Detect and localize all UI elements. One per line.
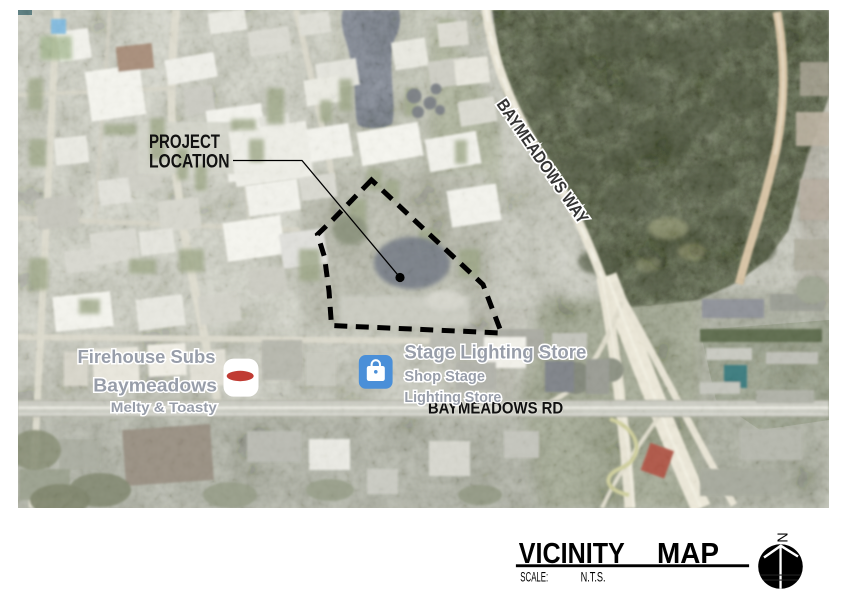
svg-text:Lighting Store: Lighting Store bbox=[404, 390, 501, 406]
svg-text:Melty & Toasty: Melty & Toasty bbox=[111, 400, 218, 415]
svg-text:LOCATION: LOCATION bbox=[149, 152, 230, 173]
svg-text:SCALE:: SCALE: bbox=[520, 570, 548, 585]
svg-text:Firehouse Subs: Firehouse Subs bbox=[78, 346, 216, 367]
svg-text:N.T.S.: N.T.S. bbox=[581, 570, 606, 585]
svg-text:Shop Stage: Shop Stage bbox=[404, 369, 485, 385]
svg-text:Baymeadows: Baymeadows bbox=[93, 375, 217, 396]
svg-text:PROJECT: PROJECT bbox=[149, 132, 220, 153]
svg-text:N: N bbox=[774, 532, 790, 542]
svg-text:Stage Lighting Store: Stage Lighting Store bbox=[404, 343, 586, 364]
